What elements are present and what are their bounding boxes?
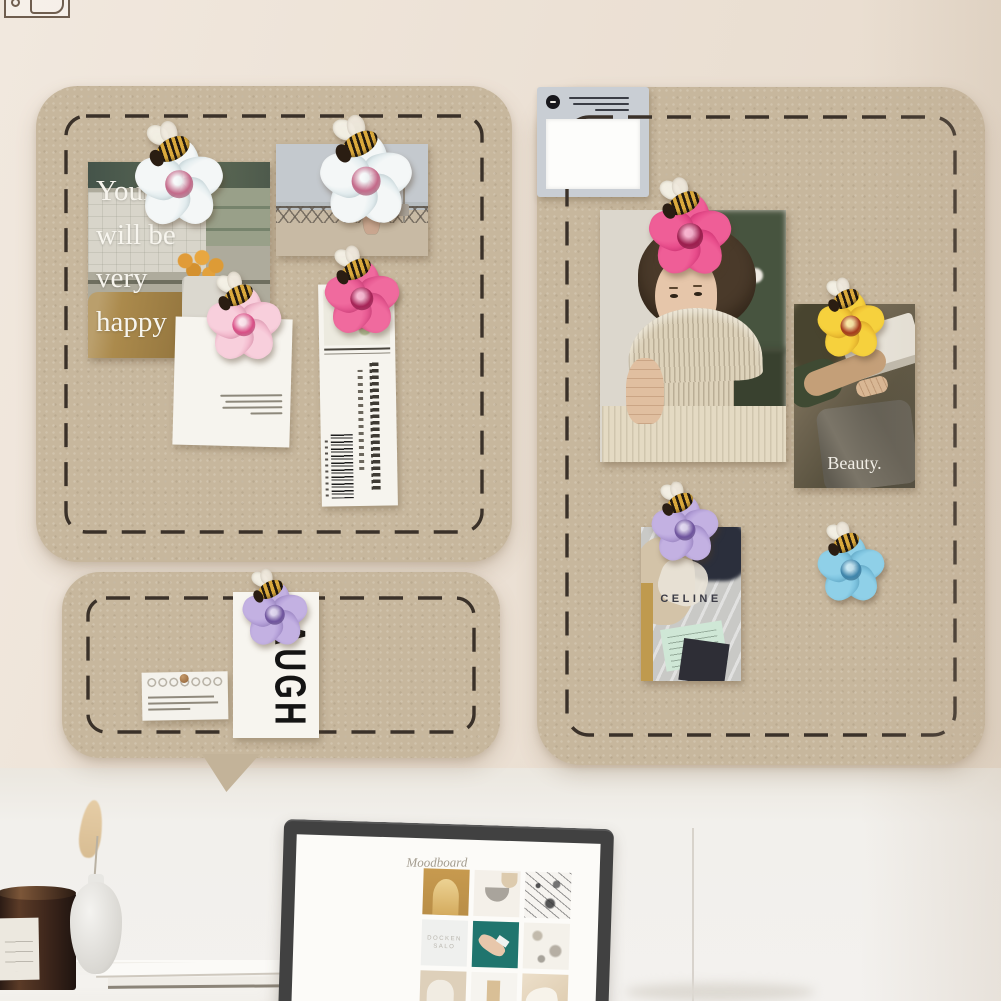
flower-bee-pin-lightpink bbox=[205, 286, 283, 364]
flower-bee-pin-purple bbox=[241, 581, 309, 649]
hand bbox=[626, 358, 664, 424]
barcode bbox=[331, 434, 354, 498]
vertical-text bbox=[369, 362, 380, 490]
tile-docken-card: DOCKEN SALO bbox=[421, 919, 468, 966]
tile-beige-abstract bbox=[521, 973, 568, 1001]
sticky-note-pad bbox=[537, 87, 649, 197]
mini-note bbox=[142, 671, 229, 720]
flower-bee-pin-magenta bbox=[647, 193, 733, 279]
product-photo-scene: Your life will be very happy bbox=[0, 0, 1001, 1001]
tile-abstract-shapes bbox=[473, 870, 520, 917]
flower-bee-pin-white bbox=[133, 138, 225, 230]
flower-bee-pin-magenta bbox=[323, 260, 401, 338]
moodboard-paragraph bbox=[329, 893, 401, 895]
tile-white-collage bbox=[523, 922, 570, 969]
white-vase bbox=[70, 882, 122, 974]
tile-arch-hallway bbox=[422, 868, 469, 915]
felt-board-right: Beauty. CELINE bbox=[537, 87, 985, 765]
candle-jar bbox=[0, 890, 76, 990]
wall-corner-line bbox=[692, 828, 694, 1001]
tile-sketch-collage bbox=[524, 871, 571, 918]
candle-label bbox=[0, 918, 40, 981]
tile-teal-hand bbox=[472, 921, 519, 968]
vertical-text bbox=[358, 370, 365, 470]
celine-brand-text: CELINE bbox=[641, 593, 741, 605]
monitor-frame: Moodboard DOCKEN SALO bbox=[278, 819, 614, 1001]
handwriting-block bbox=[220, 394, 282, 419]
blank-note-area bbox=[546, 119, 640, 189]
book bbox=[108, 976, 300, 989]
tile-beige-interior bbox=[419, 970, 466, 1001]
docken-line: SALO bbox=[433, 944, 455, 951]
watermark-shape-icon bbox=[30, 0, 64, 14]
watermark-circle-icon bbox=[11, 0, 20, 7]
flower-bee-pin-yellow bbox=[816, 291, 886, 361]
quote-line: very bbox=[96, 257, 199, 301]
docken-line: DOCKEN bbox=[427, 935, 462, 942]
moodboard-grid: DOCKEN SALO bbox=[419, 868, 574, 1001]
watermark-icon bbox=[4, 0, 70, 18]
round-pin bbox=[180, 674, 189, 683]
flower-bee-pin-white bbox=[318, 133, 414, 229]
beauty-caption: Beauty. bbox=[794, 453, 915, 474]
felt-board-left: Your life will be very happy bbox=[36, 86, 512, 562]
moodboard-screen: Moodboard DOCKEN SALO bbox=[291, 834, 601, 1001]
flower-bee-pin-purple bbox=[650, 495, 720, 565]
moodboard-paragraph bbox=[327, 941, 391, 943]
felt-board-bottom: LAUGH bbox=[62, 572, 500, 758]
desk-background-object bbox=[625, 983, 815, 1001]
tile-small-card bbox=[470, 972, 517, 1001]
flower-bee-pin-blue bbox=[816, 535, 886, 605]
logo-circle-icon bbox=[546, 95, 560, 109]
